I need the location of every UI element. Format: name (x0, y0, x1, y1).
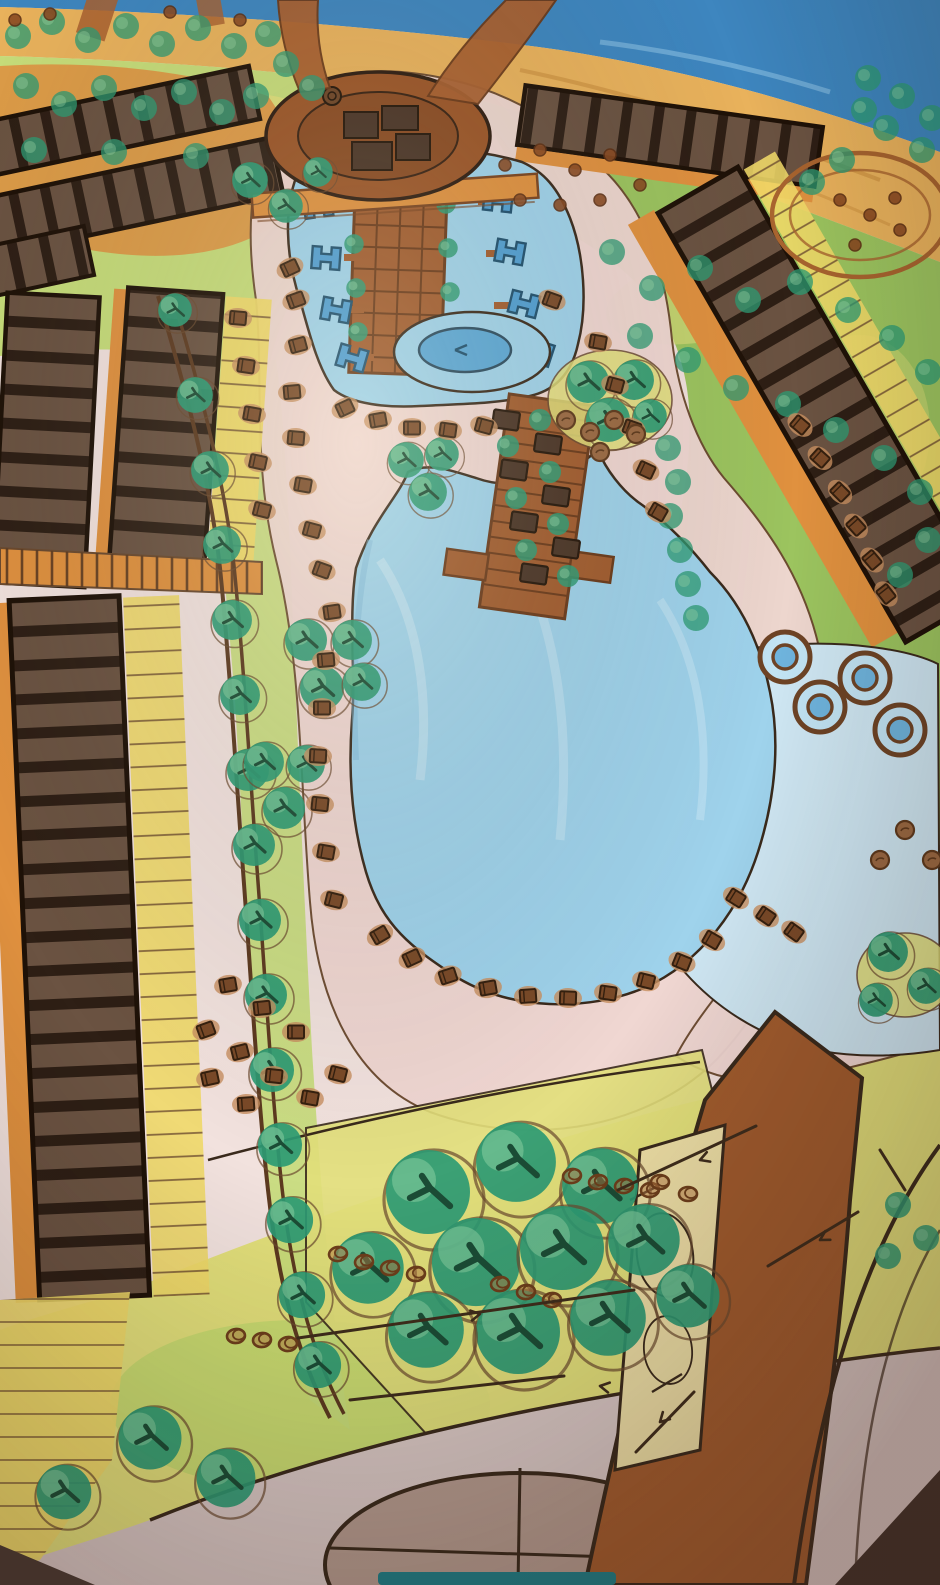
site-plan-canvas (0, 0, 940, 1585)
photo-vignette (0, 0, 940, 1585)
photo-artifacts (0, 0, 940, 1585)
site-plan-photo (0, 0, 940, 1585)
